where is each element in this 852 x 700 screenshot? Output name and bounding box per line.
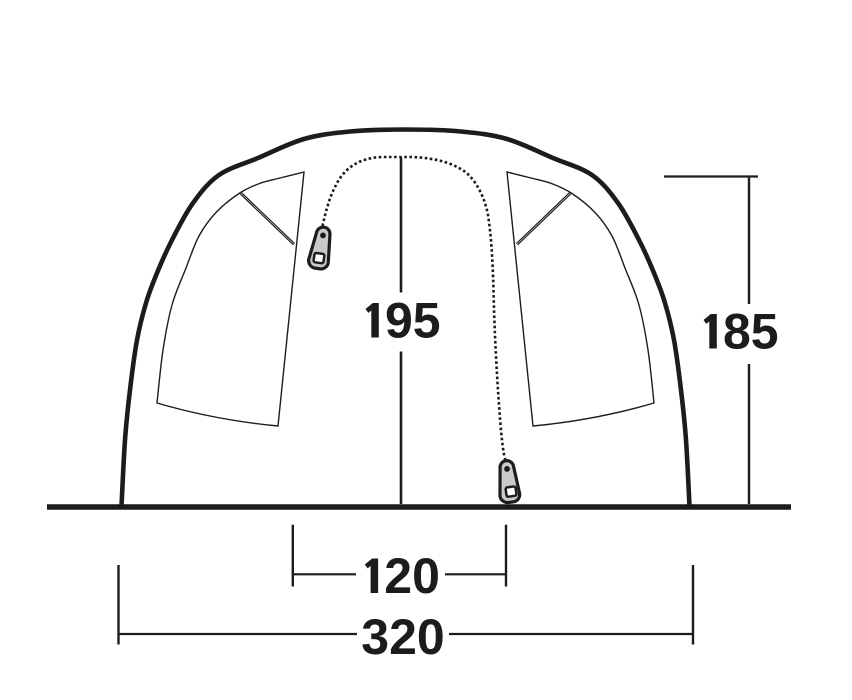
svg-text:85: 85 xyxy=(723,304,779,360)
svg-text:20: 20 xyxy=(384,548,440,604)
svg-text:95: 95 xyxy=(385,293,441,349)
svg-text:320: 320 xyxy=(361,609,444,665)
